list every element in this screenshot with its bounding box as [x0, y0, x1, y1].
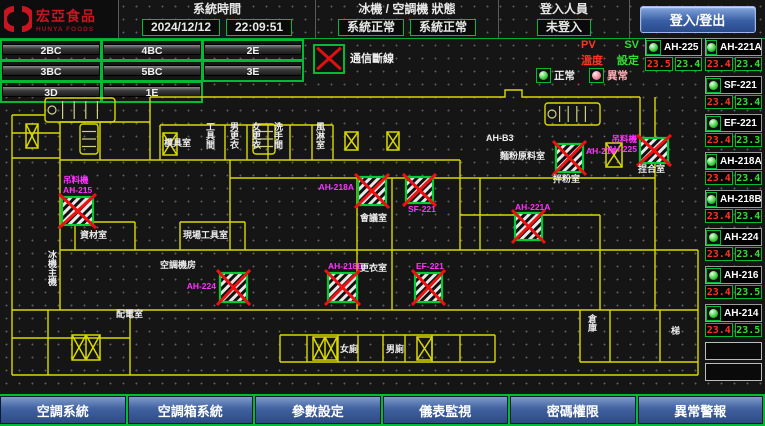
pv-label: PV	[581, 39, 596, 52]
room-label: 冰機主機	[48, 249, 58, 287]
bottom-nav-frame: 參數設定	[253, 394, 383, 426]
floor-button-frame: 3BC	[0, 60, 102, 82]
normal-led-icon	[536, 68, 551, 83]
room-label: 女廁	[340, 343, 358, 354]
floor-button-3BC[interactable]: 3BC	[2, 65, 100, 76]
unit-name: AH-225	[664, 42, 698, 53]
stairs-icon	[80, 124, 98, 154]
unit-name-cell[interactable]: AH-221A	[705, 38, 762, 56]
nav-button-異常警報[interactable]: 異常警報	[638, 396, 764, 424]
ahu-label: AH-221A	[515, 202, 550, 212]
room-label: 模具室	[164, 137, 191, 148]
unit-pv-value: 23.4	[705, 57, 733, 71]
room-label: 男更衣	[230, 122, 240, 150]
ahu-fault-box-SF-221[interactable]: SF-221	[403, 174, 436, 214]
machine-status-label: 冰機 / 空調機 狀態	[316, 0, 498, 17]
status-legend: 正常 異常	[536, 68, 628, 83]
room-label: 男廁	[386, 343, 404, 354]
unit-status-led-icon	[706, 40, 717, 55]
ahu-fault-box-EF-221[interactable]: EF-221	[412, 261, 445, 305]
room-label: 梯	[671, 325, 680, 336]
elevator-x-icon	[417, 337, 432, 360]
room-label: 更衣室	[360, 262, 387, 273]
unit-pv-value: 23.5	[645, 57, 673, 71]
floor-button-3E[interactable]: 3E	[204, 65, 302, 76]
brand-subname: HUNYA FOODS	[36, 26, 96, 33]
login-panel: 登入人員 未登入	[499, 0, 630, 38]
brand-name: 宏亞食品	[36, 6, 96, 26]
unit-sv-value: 23.4	[675, 57, 703, 71]
chiller-status-value: 系統正常	[338, 19, 404, 36]
nav-button-空調箱系統[interactable]: 空調箱系統	[128, 396, 254, 424]
bottom-nav-frame: 異常警報	[636, 394, 765, 426]
elevator-xx-icon	[72, 335, 100, 360]
pv-desc-label: 溫度	[581, 52, 603, 65]
room-label: AH-B3	[486, 133, 514, 143]
floor-button-5BC[interactable]: 5BC	[103, 65, 201, 76]
ahu-label: 吊料機	[611, 134, 637, 144]
pv-sv-legend: PV SV 溫度 設定	[581, 39, 639, 65]
comm-loss-x-icon	[313, 44, 345, 74]
machine-status-panel: 冰機 / 空調機 狀態 系統正常 系統正常	[316, 0, 499, 38]
ahu-label: AH-224	[187, 281, 217, 291]
ahu-label: AH-218B	[328, 261, 363, 271]
elevator-xx-icon	[313, 337, 337, 360]
abnormal-led-icon	[589, 68, 604, 83]
system-date-value: 2024/12/12	[142, 19, 220, 36]
elevator-x-icon	[387, 132, 399, 150]
floor-button-2E[interactable]: 2E	[204, 44, 302, 55]
hmi-screen: 宏亞食品 HUNYA FOODS 系統時間 2024/12/12 22:09:5…	[0, 0, 765, 426]
unit-status-led-icon	[646, 40, 661, 55]
sv-desc-label: 設定	[617, 52, 639, 65]
bottom-nav-frame: 空調系統	[0, 394, 128, 426]
nav-button-儀表監視[interactable]: 儀表監視	[383, 396, 509, 424]
sv-label: SV	[624, 39, 639, 52]
floor-button-frame: 2BC	[0, 39, 102, 61]
room-label: 現場工具室	[183, 229, 228, 240]
comm-loss-legend: 通信斷線	[313, 44, 394, 74]
room-label: 洗手間	[274, 121, 283, 150]
room-label: 資材室	[80, 229, 107, 240]
system-time-value: 22:09:51	[226, 19, 292, 36]
abnormal-label: 異常	[607, 68, 628, 83]
login-status-value: 未登入	[537, 19, 591, 36]
room-label: 會議室	[360, 212, 387, 223]
room-label: 空調機房	[160, 259, 196, 270]
system-time-label: 系統時間	[119, 0, 315, 17]
ac-status-value: 系統正常	[410, 19, 476, 36]
ahu-fault-box-AH-218B[interactable]: AH-218B	[325, 261, 363, 305]
unit-sv-value: 23.4	[735, 57, 763, 71]
room-label: 麵粉原料室	[499, 150, 545, 161]
top-bar: 宏亞食品 HUNYA FOODS 系統時間 2024/12/12 22:09:5…	[0, 0, 765, 39]
login-button-area: 登入/登出	[630, 0, 765, 38]
bottom-nav-frame: 密碼權限	[508, 394, 638, 426]
logo: 宏亞食品 HUNYA FOODS	[0, 0, 119, 38]
login-label: 登入人員	[499, 0, 629, 17]
ahu-fault-box-AH-225[interactable]: 吊料機AH-225	[608, 134, 671, 166]
ahu-fault-box-AH-218A[interactable]: AH-218A	[319, 174, 389, 208]
bottom-nav-frame: 空調箱系統	[126, 394, 256, 426]
floor-button-2BC[interactable]: 2BC	[2, 44, 100, 55]
unit-name: AH-221A	[720, 42, 762, 53]
elevator-x-icon	[345, 132, 358, 150]
floor-button-frame: 4BC	[101, 39, 203, 61]
room-label: 風淋室	[316, 122, 325, 150]
ahu-label: AH-218A	[319, 182, 354, 192]
nav-button-空調系統[interactable]: 空調系統	[0, 396, 126, 424]
login-logout-button[interactable]: 登入/登出	[640, 6, 756, 33]
brand-logo-icon	[4, 6, 32, 32]
floor-button-4BC[interactable]: 4BC	[103, 44, 201, 55]
nav-button-密碼權限[interactable]: 密碼權限	[510, 396, 636, 424]
ahu-fault-box-AH-224[interactable]: AH-224	[187, 270, 250, 305]
system-time-panel: 系統時間 2024/12/12 22:09:51	[119, 0, 316, 38]
ahu-label: AH-215	[63, 185, 93, 195]
room-label: 工具間	[205, 122, 215, 150]
bottom-nav-frame: 儀表監視	[381, 394, 511, 426]
floor-button-frame: 2E	[202, 39, 304, 61]
ahu-label: 吊料機	[63, 175, 89, 185]
unit-pair-row: AH-22523.523.4AH-221A23.423.4	[645, 38, 764, 71]
bottom-nav: 空調系統空調箱系統參數設定儀表監視密碼權限異常警報	[0, 394, 765, 426]
unit-name-cell[interactable]: AH-225	[645, 38, 702, 56]
floor-button-frame: 3E	[202, 60, 304, 82]
ahu-label: SF-221	[408, 204, 436, 214]
ahu-fault-box-AH-215[interactable]: 吊料機AH-215	[59, 175, 96, 228]
floorplan: 吊料機AH-215AH-218ASF-221AH-214吊料機AH-225AH-…	[0, 88, 765, 394]
nav-button-參數設定[interactable]: 參數設定	[255, 396, 381, 424]
floor-button-frame: 5BC	[101, 60, 203, 82]
normal-label: 正常	[554, 68, 575, 83]
unit-AH-221A[interactable]: AH-221A23.423.4	[705, 38, 762, 71]
room-label: 倉庫	[587, 313, 598, 333]
ahu-label: EF-221	[416, 261, 444, 271]
room-label: 配電室	[116, 308, 143, 319]
ahu-fault-box-AH-221A[interactable]: AH-221A	[512, 202, 550, 243]
room-label: 拌粉室	[553, 173, 580, 184]
room-label: 捏合室	[638, 163, 665, 174]
unit-AH-225[interactable]: AH-22523.523.4	[645, 38, 702, 71]
ahu-label: AH-225	[608, 144, 638, 154]
elevator-x-icon	[26, 124, 38, 148]
room-label: 女更衣	[252, 121, 262, 150]
comm-loss-label: 通信斷線	[350, 50, 394, 66]
stairs-icon	[545, 103, 600, 125]
stairs-icon	[45, 98, 115, 122]
normal-legend-item: 正常	[536, 68, 575, 83]
abnormal-legend-item: 異常	[589, 68, 628, 83]
